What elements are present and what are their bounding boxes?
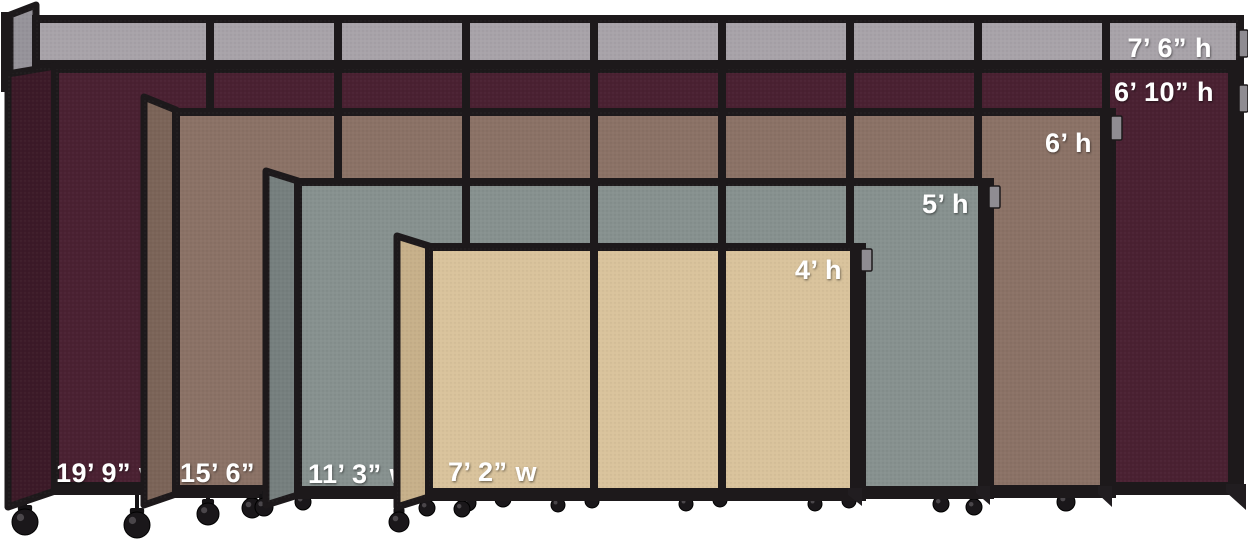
scene-canvas: 7’ 6” h6’ 10” h19’ 9” w6’ h15’ 6” w5’ h1… bbox=[0, 0, 1248, 542]
right-end-frame bbox=[1100, 112, 1112, 494]
caster-wheel-highlight bbox=[129, 517, 136, 524]
caster-wheel bbox=[12, 509, 38, 535]
caster-wheel-highlight bbox=[246, 502, 252, 508]
caster-wheel bbox=[197, 503, 219, 525]
sand-4ft-height-label: 4’ h bbox=[795, 255, 842, 285]
corner-foot bbox=[1226, 484, 1246, 510]
caster-wheel bbox=[124, 512, 150, 538]
divider-sand-4ft: 4’ h7’ 2” w bbox=[397, 236, 872, 517]
wall-bracket bbox=[989, 186, 1000, 208]
right-end-frame bbox=[1228, 69, 1240, 491]
caster-wheel bbox=[389, 512, 409, 532]
caster-wheel-highlight bbox=[17, 514, 24, 521]
caster-wheel-highlight bbox=[554, 501, 558, 505]
dividers-layer: 7’ 6” h6’ 10” h19’ 9” w6’ h15’ 6” w5’ h1… bbox=[1, 5, 1248, 538]
caster-wheel bbox=[454, 501, 470, 517]
sand-4ft-width-label: 7’ 2” w bbox=[448, 457, 538, 487]
end-panel-texture bbox=[8, 66, 55, 507]
room-divider-size-comparison: 7’ 6” h6’ 10” h19’ 9” w6’ h15’ 6” w5’ h1… bbox=[0, 0, 1248, 542]
wall-bracket bbox=[1239, 30, 1248, 57]
caster-wheel-highlight bbox=[422, 503, 426, 507]
caster-wheel-highlight bbox=[969, 502, 973, 506]
slate-5ft-height-label: 5’ h bbox=[922, 189, 969, 219]
panel-mullion bbox=[718, 247, 726, 497]
caster-wheel-highlight bbox=[393, 516, 399, 522]
gray-7ft6-height-label: 7’ 6” h bbox=[1127, 33, 1212, 63]
bottom-rail bbox=[426, 488, 865, 497]
end-panel-texture bbox=[397, 236, 429, 507]
cranberry-6ft10-height-label: 6’ 10” h bbox=[1114, 77, 1214, 107]
caster-wheel bbox=[966, 499, 982, 515]
right-end-frame bbox=[850, 247, 862, 497]
mocha-6ft-height-label: 6’ h bbox=[1045, 128, 1092, 158]
wall-bracket bbox=[861, 249, 872, 271]
caster-wheel-highlight bbox=[936, 499, 940, 503]
wall-bracket bbox=[1239, 85, 1248, 112]
right-end-frame bbox=[978, 182, 990, 495]
wall-bracket bbox=[1111, 116, 1122, 140]
end-panel-texture bbox=[266, 171, 298, 505]
caster-wheel-highlight bbox=[457, 504, 461, 508]
panel-mullion bbox=[590, 247, 598, 497]
caster-wheel-highlight bbox=[201, 507, 207, 513]
end-panel-texture bbox=[144, 97, 176, 505]
